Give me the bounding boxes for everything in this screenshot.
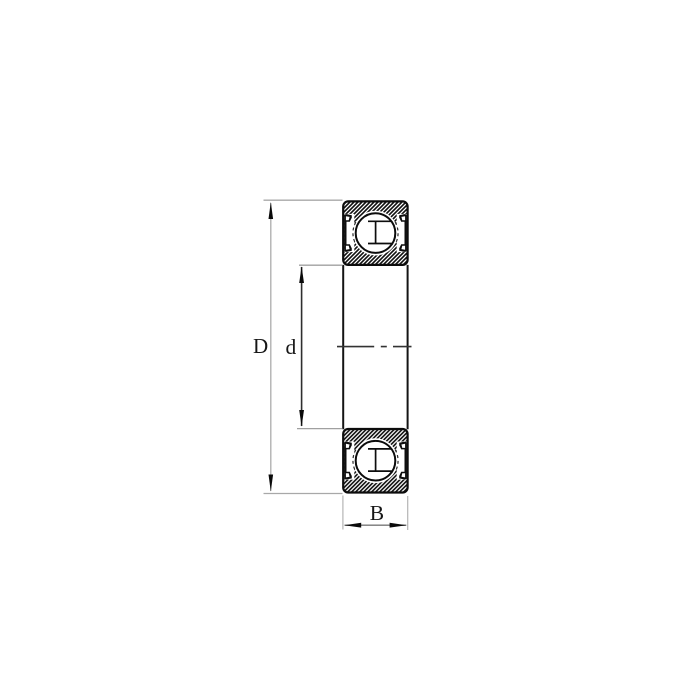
svg-text:B: B — [370, 501, 384, 525]
svg-text:d: d — [286, 335, 297, 359]
svg-text:D: D — [253, 334, 268, 358]
